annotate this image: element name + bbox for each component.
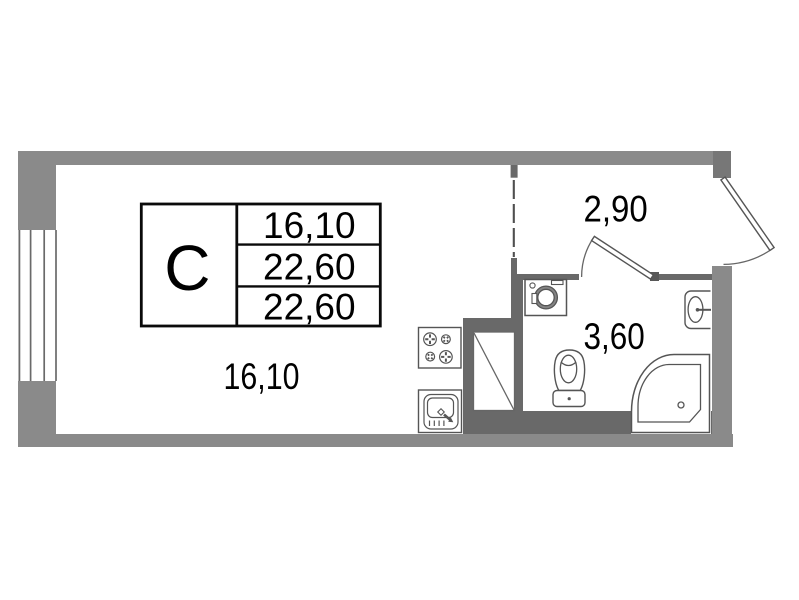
svg-text:16,10: 16,10: [224, 356, 300, 398]
svg-text:16,10: 16,10: [263, 205, 356, 246]
svg-text:22,60: 22,60: [263, 287, 356, 328]
svg-text:2,90: 2,90: [584, 188, 648, 229]
svg-text:3,60: 3,60: [584, 316, 645, 357]
svg-text:22,60: 22,60: [263, 247, 356, 288]
svg-text:С: С: [164, 232, 210, 304]
